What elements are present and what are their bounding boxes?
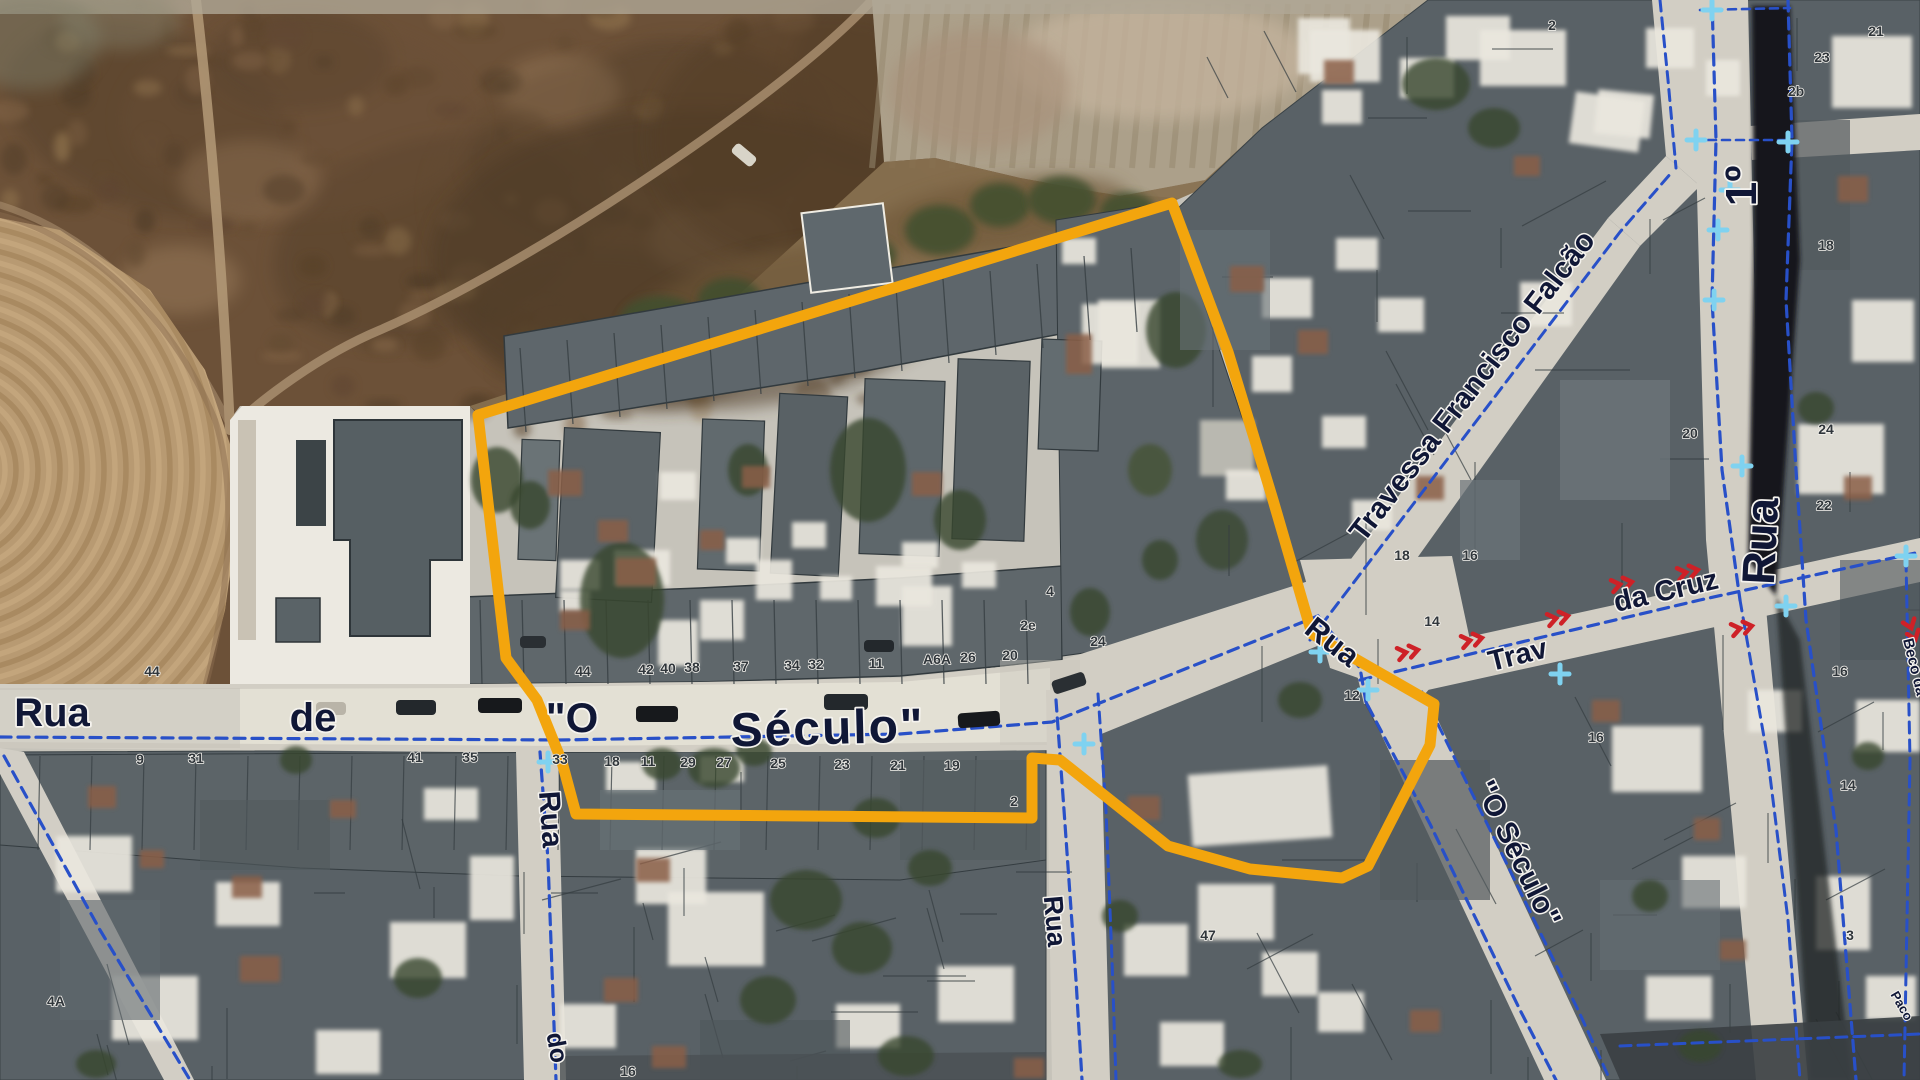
- svg-text:26: 26: [960, 649, 976, 665]
- svg-text:21: 21: [890, 757, 906, 773]
- svg-text:3: 3: [1846, 927, 1854, 943]
- svg-text:9: 9: [136, 751, 144, 767]
- svg-text:1º: 1º: [1717, 166, 1766, 207]
- svg-text:18: 18: [1394, 547, 1410, 563]
- svg-text:4: 4: [1046, 583, 1054, 599]
- svg-text:de: de: [290, 696, 337, 740]
- svg-text:2e: 2e: [1020, 617, 1036, 633]
- svg-text:Rua: Rua: [14, 691, 90, 735]
- svg-text:21: 21: [1868, 23, 1884, 39]
- svg-text:47: 47: [1200, 927, 1216, 943]
- svg-text:14: 14: [1840, 777, 1856, 793]
- svg-text:11: 11: [641, 753, 656, 769]
- svg-text:34: 34: [784, 657, 800, 673]
- svg-text:20: 20: [1682, 425, 1698, 441]
- svg-text:Século": Século": [730, 699, 925, 757]
- svg-text:20: 20: [1002, 647, 1018, 663]
- svg-text:23: 23: [1814, 49, 1830, 65]
- svg-text:41: 41: [407, 749, 423, 765]
- svg-text:27: 27: [716, 754, 732, 770]
- svg-text:24: 24: [1090, 633, 1106, 649]
- svg-text:23: 23: [834, 756, 850, 772]
- svg-text:16: 16: [1462, 547, 1478, 563]
- svg-text:A6A: A6A: [923, 651, 951, 667]
- svg-text:16: 16: [620, 1063, 636, 1079]
- svg-text:31: 31: [188, 750, 204, 766]
- svg-text:42: 42: [638, 661, 654, 677]
- svg-text:16: 16: [1832, 663, 1848, 679]
- svg-text:2b: 2b: [1788, 83, 1804, 99]
- svg-text:44: 44: [575, 663, 591, 679]
- svg-text:24: 24: [1818, 421, 1834, 437]
- svg-text:14: 14: [1424, 613, 1440, 629]
- svg-text:do: do: [540, 1030, 573, 1065]
- svg-text:18: 18: [604, 753, 620, 769]
- svg-text:Rua: Rua: [1038, 894, 1072, 948]
- svg-text:35: 35: [462, 749, 478, 765]
- svg-text:44: 44: [144, 663, 160, 679]
- svg-text:29: 29: [680, 754, 696, 770]
- svg-text:"O: "O: [546, 694, 599, 741]
- svg-text:37: 37: [733, 658, 749, 674]
- svg-text:Rua: Rua: [1732, 496, 1788, 586]
- svg-text:2: 2: [1548, 17, 1556, 33]
- svg-text:19: 19: [944, 757, 960, 773]
- svg-text:4A: 4A: [47, 993, 65, 1009]
- svg-text:18: 18: [1818, 237, 1834, 253]
- svg-text:16: 16: [1588, 729, 1604, 745]
- svg-text:38: 38: [684, 659, 700, 675]
- svg-text:11: 11: [869, 655, 884, 671]
- svg-text:2: 2: [1010, 793, 1018, 809]
- svg-text:25: 25: [770, 755, 786, 771]
- svg-text:22: 22: [1816, 497, 1832, 513]
- svg-text:12: 12: [1344, 687, 1360, 703]
- svg-text:33: 33: [552, 751, 568, 767]
- svg-text:Rua: Rua: [532, 790, 569, 849]
- svg-text:32: 32: [808, 656, 824, 672]
- svg-text:40: 40: [660, 660, 676, 676]
